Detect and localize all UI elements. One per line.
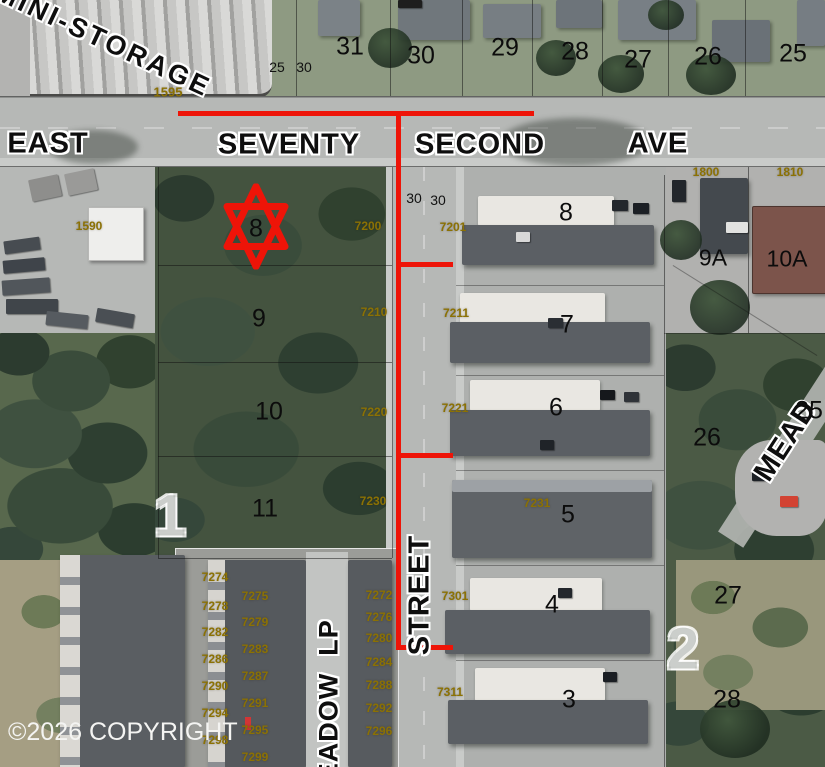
parcel-line (462, 0, 463, 96)
parcel-line (0, 96, 825, 97)
unit-label-10a: 10A (767, 246, 808, 273)
address-1595: 1595 (154, 85, 183, 100)
apartment-building-roof (475, 668, 605, 701)
vehicle (2, 277, 51, 295)
road-label-meadow-lp: MEADOW LP (314, 619, 345, 767)
woods-lot-9: 9 (252, 305, 266, 334)
side-lot-28: 28 (713, 686, 741, 715)
parcel-line (532, 0, 533, 96)
lot-number-25: 25 (779, 40, 807, 69)
road-label-east: EAST (7, 128, 88, 161)
address-7279: 7279 (242, 615, 269, 629)
address-1810: 1810 (777, 165, 804, 179)
building-9a (700, 178, 748, 254)
vehicle (603, 672, 617, 682)
lot-number-31: 31 (336, 33, 364, 62)
vehicle (398, 0, 422, 8)
house-roof (556, 0, 602, 28)
truck-yard (0, 167, 158, 333)
yard-building (88, 207, 144, 261)
red-highlight-street (396, 112, 401, 650)
address-7221: 7221 (442, 401, 469, 415)
vehicle (516, 232, 530, 242)
lot-number-26: 26 (694, 43, 722, 72)
parcel-line (390, 0, 391, 96)
address-7211: 7211 (443, 306, 469, 320)
address-7311: 7311 (437, 685, 463, 699)
address-1800: 1800 (693, 165, 720, 179)
apartment-building (462, 225, 654, 265)
apartment-building-roof (478, 196, 614, 226)
apartment-building-roof (470, 380, 600, 411)
address-7292: 7292 (366, 701, 393, 715)
vehicle (558, 588, 572, 598)
block-number-2: 2 (667, 616, 699, 683)
address-7295: 7295 (242, 723, 269, 737)
marker-lot-number: 8 (249, 215, 263, 244)
address-7272: 7272 (366, 588, 393, 602)
block-number-1: 1 (154, 483, 186, 550)
address-7288: 7288 (366, 678, 393, 692)
red-highlight-avenue (178, 111, 534, 116)
width-label: 30 (296, 59, 312, 75)
parcel-line (602, 0, 603, 96)
tree (660, 220, 702, 260)
parcel-line (158, 558, 392, 559)
apartment-building (450, 322, 650, 363)
parcel-line (158, 362, 392, 363)
building-number-7: 7 (560, 311, 574, 340)
building-number-3: 3 (562, 686, 576, 715)
road-label-seventy: SEVENTY (218, 129, 360, 162)
vehicle (64, 168, 98, 196)
address-7275: 7275 (242, 589, 269, 603)
road-label-ave: AVE (628, 128, 688, 161)
vehicle (540, 440, 554, 450)
parcel-line (296, 0, 297, 96)
address-7283: 7283 (242, 642, 269, 656)
width-label: 25 (269, 59, 285, 75)
parcel-line (664, 175, 665, 767)
parcel-line (668, 0, 669, 96)
road-label-street: STREET (404, 535, 437, 655)
address-7278: 7278 (202, 599, 229, 613)
address-7299: 7299 (242, 750, 269, 764)
address-7291: 7291 (242, 696, 269, 710)
vehicle (95, 308, 135, 328)
street-dashes (423, 167, 425, 767)
unit-label-9a: 9A (699, 245, 727, 272)
lot-number-27: 27 (624, 46, 652, 75)
aerial-parcel-map[interactable]: EAST SEVENTY SECOND AVE STREET MEADOW LP… (0, 0, 825, 767)
side-lot-26: 26 (693, 424, 721, 453)
side-lot-25: 25 (795, 397, 823, 426)
address-7284: 7284 (366, 655, 393, 669)
vehicle (28, 174, 62, 202)
address-7286: 7286 (202, 652, 229, 666)
address-7274: 7274 (202, 570, 229, 584)
parcel-line (456, 565, 664, 566)
building-number-4: 4 (545, 591, 559, 620)
parcel-line (456, 470, 664, 471)
vehicle (780, 496, 798, 507)
lot-number-29: 29 (491, 34, 519, 63)
address-7220: 7220 (361, 405, 388, 419)
parcel-line (745, 0, 746, 96)
parcel-line (456, 285, 664, 286)
road-label-second: SECOND (415, 129, 545, 162)
parcel-line (158, 456, 392, 457)
parcel-line (748, 167, 749, 333)
address-7282: 7282 (202, 625, 229, 639)
address-7210: 7210 (361, 305, 388, 319)
vehicle (45, 311, 88, 329)
woods-lot-11: 11 (252, 495, 278, 524)
apartment-building (448, 700, 648, 744)
apartment-building-roof (470, 578, 602, 611)
address-7287: 7287 (242, 669, 269, 683)
vehicle (726, 222, 748, 233)
parcel-line (456, 660, 664, 661)
vehicle (672, 180, 686, 202)
parcel-line (456, 375, 664, 376)
lot-number-28: 28 (561, 38, 589, 67)
address-7230: 7230 (360, 494, 387, 508)
parcel-line (664, 333, 825, 334)
vehicle (3, 237, 40, 255)
lot-number-30: 30 (407, 42, 435, 71)
building-number-5: 5 (561, 501, 575, 530)
avenue-dashes (0, 127, 825, 129)
vehicle (3, 257, 46, 274)
vehicle (612, 200, 628, 211)
building-number-8: 8 (559, 199, 573, 228)
building-number-6: 6 (549, 394, 563, 423)
vehicle (600, 390, 615, 400)
vehicle (624, 392, 639, 402)
parcel-line (392, 167, 393, 558)
apartment-building-roof (452, 480, 652, 492)
address-7231: 7231 (524, 496, 551, 510)
width-label: 30 (406, 190, 422, 206)
address-7301: 7301 (442, 589, 469, 603)
address-7280: 7280 (366, 631, 393, 645)
woods-lot-10: 10 (255, 398, 283, 427)
vehicle (633, 203, 649, 214)
address-7276: 7276 (366, 610, 393, 624)
apartment-building-roof (460, 293, 605, 323)
west-vegetation (0, 333, 158, 573)
house-roof (318, 0, 360, 36)
address-7296: 7296 (366, 724, 393, 738)
tree (648, 0, 684, 30)
red-tick (398, 453, 453, 458)
width-label: 30 (430, 192, 446, 208)
copyright-watermark: ©2026 COPYRIGHT (8, 718, 238, 747)
address-7200: 7200 (355, 219, 382, 233)
address-1590: 1590 (76, 219, 103, 233)
side-lot-27: 27 (714, 582, 742, 611)
red-tick (398, 262, 453, 267)
address-7201: 7201 (440, 220, 467, 234)
address-7290: 7290 (202, 679, 229, 693)
